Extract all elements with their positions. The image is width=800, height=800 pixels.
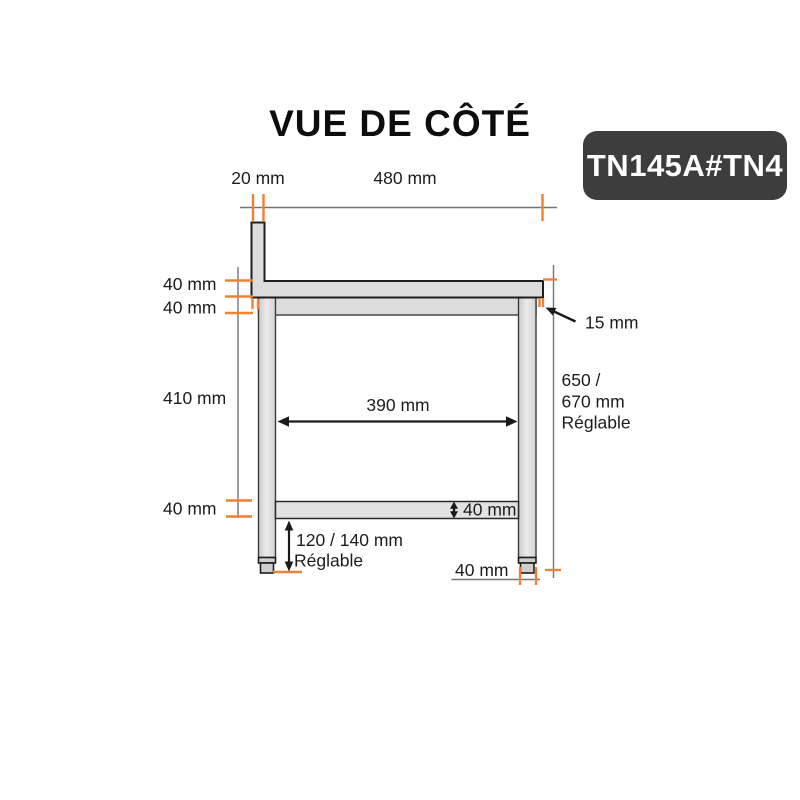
label-foot-adjust-range: 120 / 140 mm	[296, 530, 403, 550]
left-foot-pad	[261, 563, 274, 573]
dimension-lines	[238, 208, 557, 580]
left-leg	[259, 298, 276, 558]
product-diagram-page: VUE DE CÔTÉ TN145A#TN4	[0, 0, 800, 800]
label-total-height-note: Réglable	[562, 413, 631, 433]
label-backsplash-thickness: 20 mm	[231, 168, 284, 188]
label-shelf-thickness: 40 mm	[463, 500, 516, 520]
label-inner-width: 390 mm	[366, 395, 429, 415]
overhang-pointer-arrow	[546, 308, 576, 322]
label-foot-adjust-note: Réglable	[294, 551, 363, 571]
label-frame-rail-height: 40 mm	[163, 298, 216, 318]
left-foot-collar	[259, 558, 276, 564]
label-top-width: 480 mm	[373, 168, 436, 188]
foot-adjust-arrow	[285, 521, 294, 572]
worktop-with-backsplash	[252, 223, 544, 298]
inner-width-arrow	[278, 416, 518, 427]
label-foot-width: 40 mm	[455, 560, 508, 580]
frame-rail	[259, 298, 537, 316]
label-shelf-height-left: 40 mm	[163, 499, 216, 519]
label-leg-clear-height: 410 mm	[163, 388, 226, 408]
right-foot-pad	[521, 563, 535, 573]
side-view-drawing: 20 mm 480 mm 40 mm 40 mm 410 mm 40 mm 39…	[0, 0, 800, 800]
left-foot	[259, 558, 276, 574]
label-worktop-overhang: 15 mm	[585, 313, 638, 333]
right-leg	[519, 298, 537, 558]
label-total-height-part1: 650 /	[562, 370, 601, 390]
label-total-height-part2: 670 mm	[562, 392, 625, 412]
label-worktop-thickness: 40 mm	[163, 274, 216, 294]
right-foot-collar	[519, 558, 537, 564]
